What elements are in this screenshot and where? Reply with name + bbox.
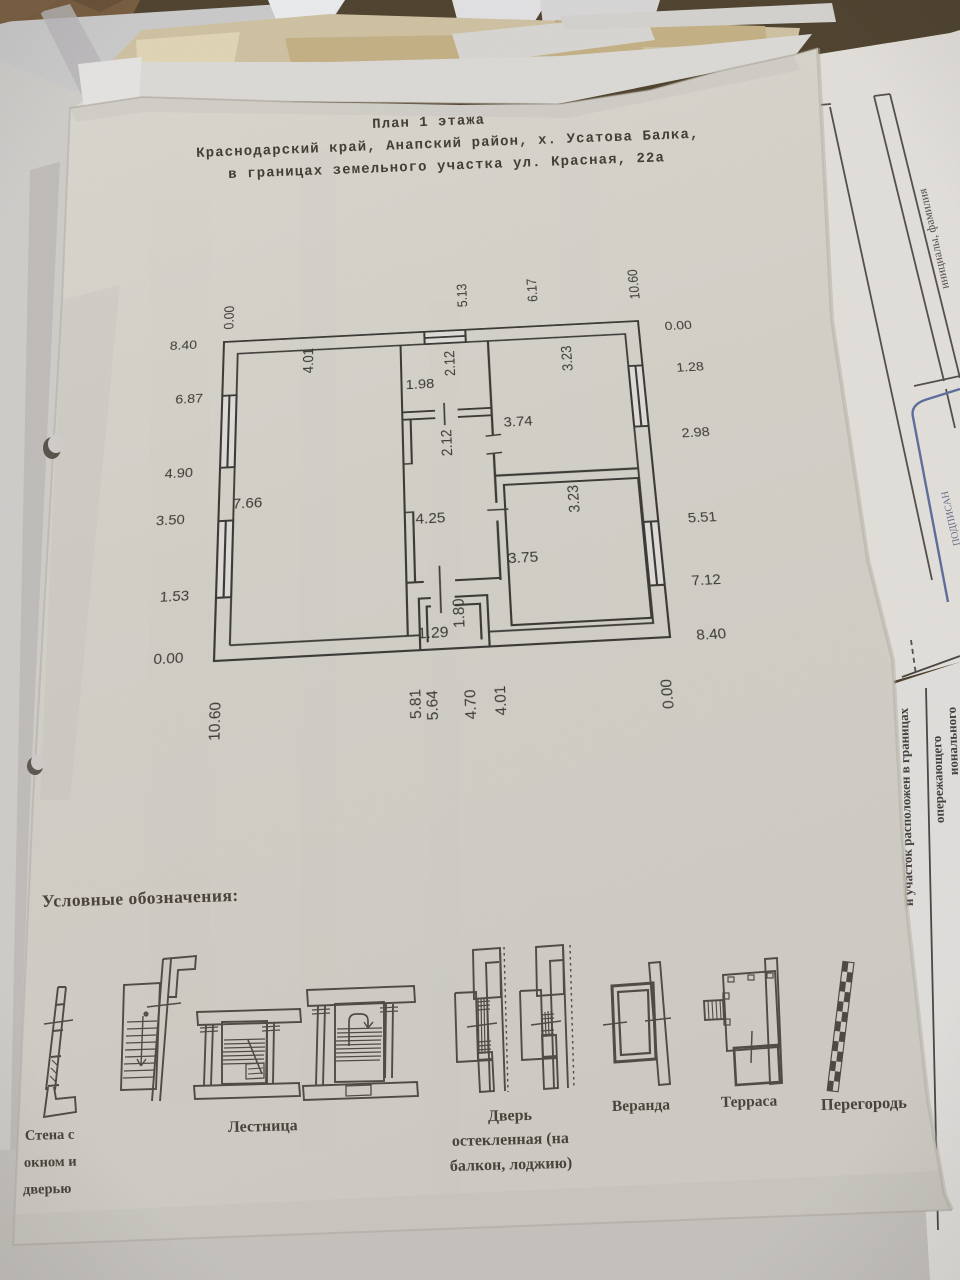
svg-text:1.29: 1.29: [417, 623, 449, 643]
svg-text:8.40: 8.40: [695, 625, 727, 643]
svg-text:8.40: 8.40: [169, 338, 197, 353]
svg-text:7.12: 7.12: [691, 571, 722, 589]
svg-text:6.17: 6.17: [524, 278, 541, 302]
svg-text:0.00: 0.00: [153, 649, 184, 668]
svg-text:5.13: 5.13: [454, 283, 471, 307]
svg-text:6.87: 6.87: [175, 391, 204, 407]
svg-text:1.80: 1.80: [449, 598, 469, 628]
svg-text:4.01: 4.01: [299, 348, 316, 374]
svg-text:10.60: 10.60: [205, 701, 224, 741]
svg-text:1.53: 1.53: [159, 587, 189, 605]
svg-text:0.00: 0.00: [664, 318, 693, 333]
svg-text:3.75: 3.75: [507, 548, 538, 567]
svg-text:7.66: 7.66: [232, 494, 262, 512]
svg-text:0.00: 0.00: [221, 305, 238, 330]
svg-text:0.00: 0.00: [657, 678, 678, 709]
svg-text:3.23: 3.23: [557, 345, 576, 371]
svg-text:3.50: 3.50: [156, 512, 186, 529]
svg-text:4.01: 4.01: [491, 685, 510, 716]
svg-text:3.74: 3.74: [503, 413, 533, 430]
svg-text:1.28: 1.28: [676, 359, 705, 375]
svg-text:2.12: 2.12: [440, 350, 458, 376]
svg-text:4.25: 4.25: [415, 509, 445, 527]
svg-text:1.98: 1.98: [405, 375, 434, 392]
svg-text:3.23: 3.23: [563, 485, 583, 513]
svg-text:10.60: 10.60: [624, 269, 643, 300]
svg-text:2.12: 2.12: [437, 429, 456, 457]
svg-text:5.81: 5.81: [406, 688, 425, 719]
svg-text:4.70: 4.70: [461, 689, 480, 720]
svg-text:5.64: 5.64: [423, 690, 442, 721]
svg-text:4.90: 4.90: [164, 465, 193, 482]
svg-text:5.51: 5.51: [687, 509, 718, 526]
svg-text:2.98: 2.98: [681, 424, 711, 440]
